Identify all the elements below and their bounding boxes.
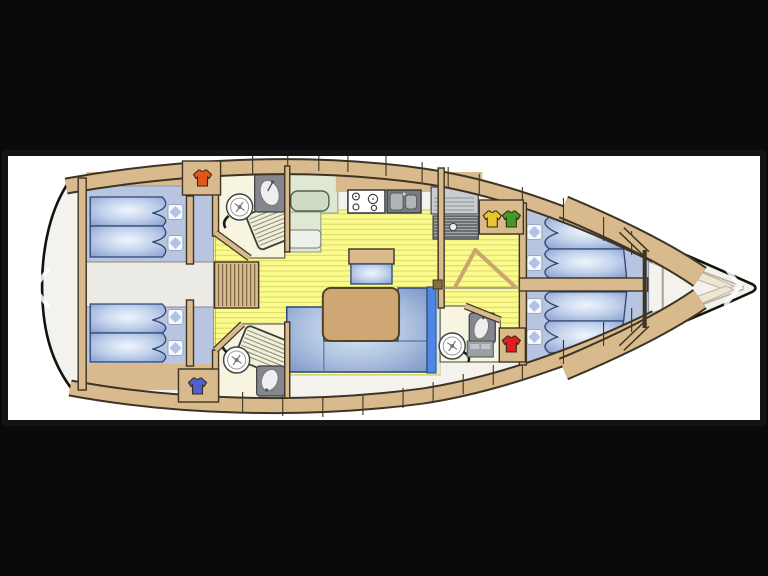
pillow [168,310,183,325]
floorplan-image[interactable] [2,150,766,426]
carousel-next-button[interactable] [716,260,750,312]
image-viewer [0,0,768,576]
wardrobe-forward-starboard [499,328,525,362]
sink-icon [257,366,285,396]
yacht-floorplan-svg [8,156,760,420]
carousel-prev-button[interactable] [24,262,58,314]
pillow [527,330,542,345]
pillow [168,236,183,251]
chevron-right-icon [716,260,750,312]
pillow [527,225,542,240]
wardrobe-aft-port [182,161,220,195]
stove-icon [348,190,385,213]
salon-stool [349,249,394,284]
pillow [527,256,542,271]
chevron-left-icon [24,262,58,314]
sink-icon [255,174,287,212]
pillow [527,299,542,314]
slatted-steps-panel [215,262,259,308]
pillow [168,341,183,356]
pillow [168,205,183,220]
engine-compartment [86,262,213,307]
dinette-table [323,288,399,341]
galley-sink-icon [387,190,421,213]
wardrobe-forward-port [479,200,523,234]
wardrobe-aft-starboard [178,369,218,402]
